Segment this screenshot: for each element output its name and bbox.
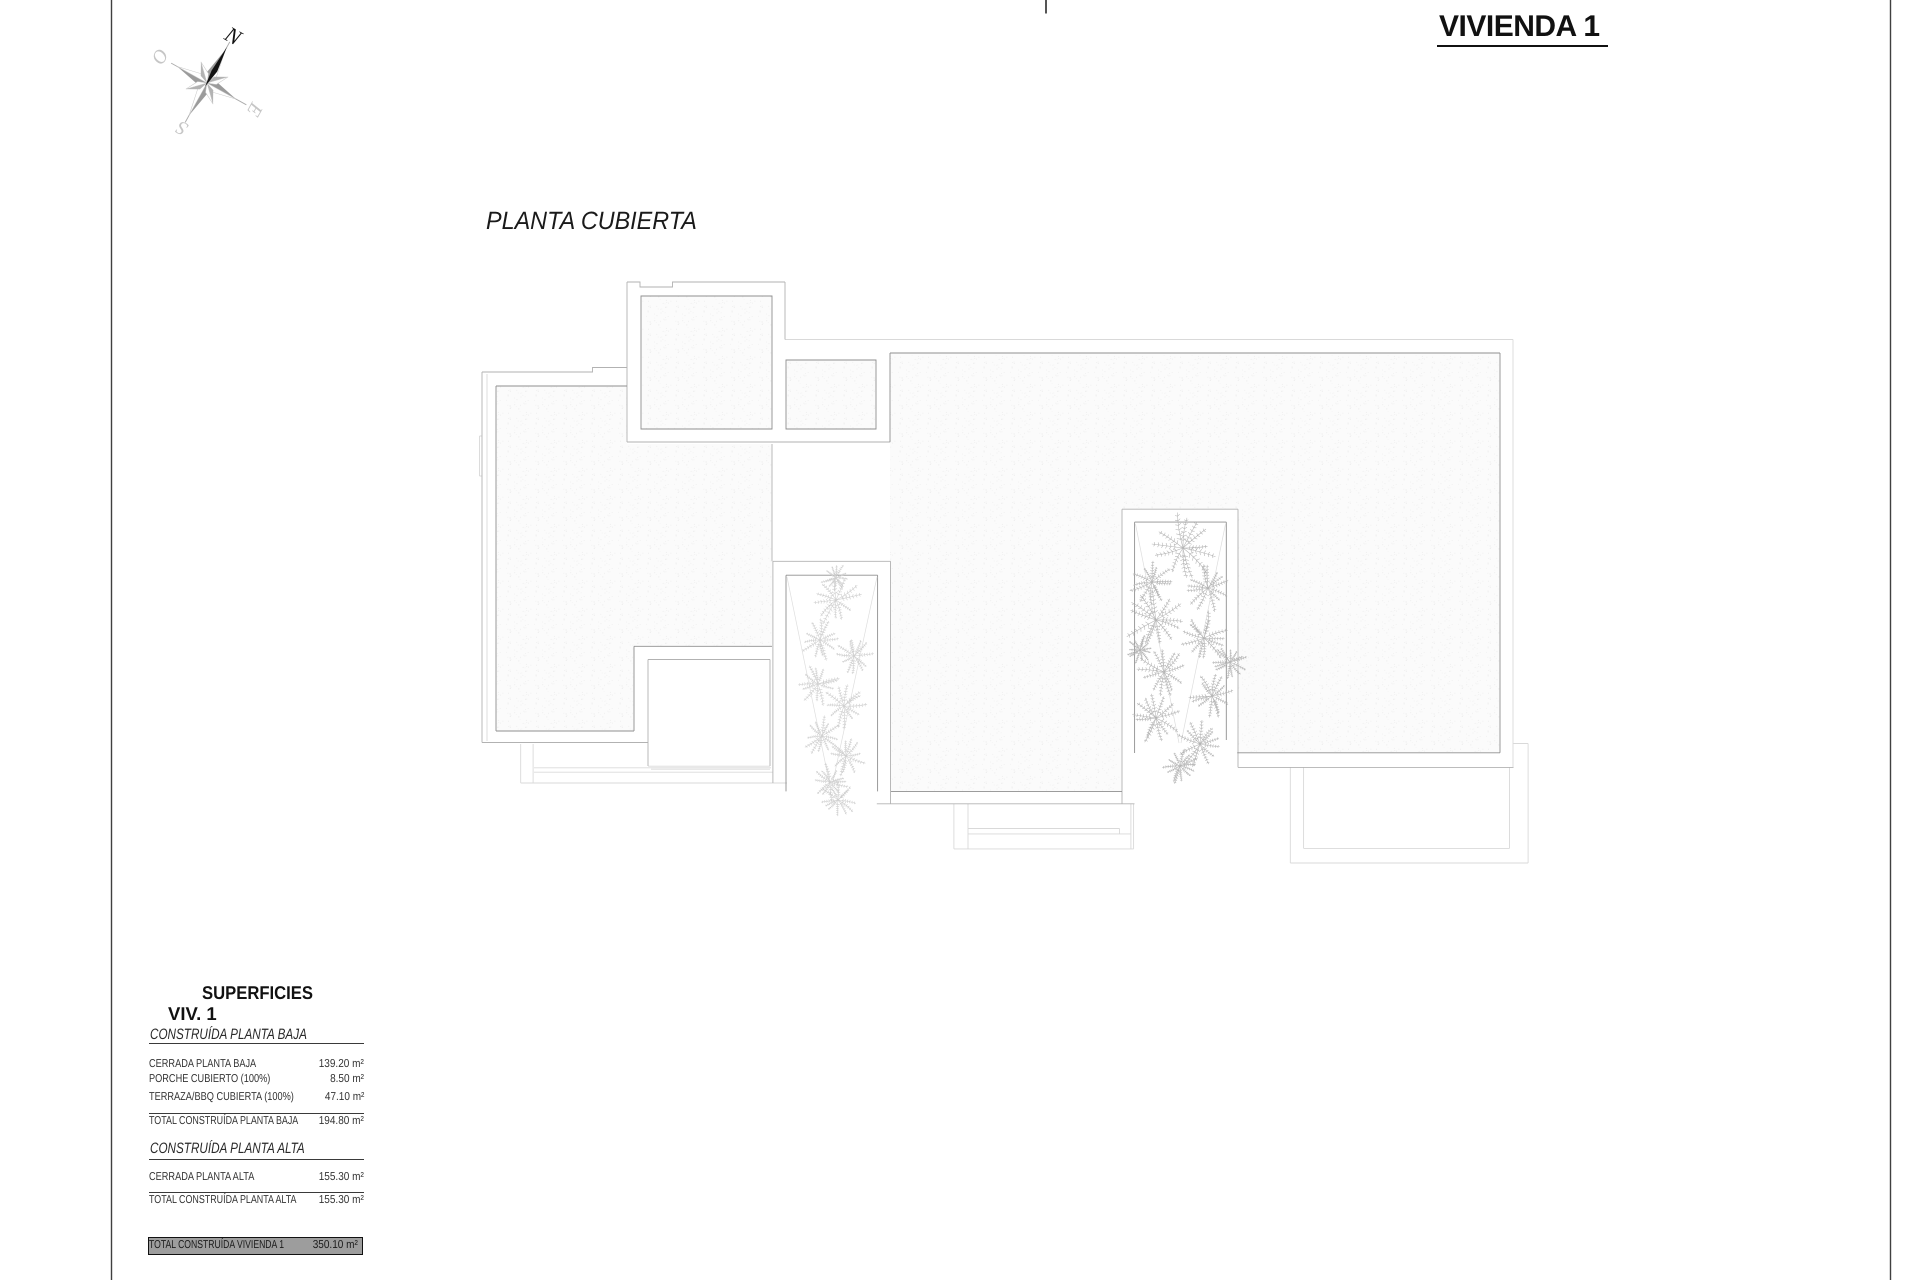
- svg-text:O: O: [148, 46, 173, 69]
- svg-text:N: N: [220, 21, 247, 51]
- svg-text:S: S: [173, 116, 192, 139]
- svg-text:E: E: [242, 98, 267, 120]
